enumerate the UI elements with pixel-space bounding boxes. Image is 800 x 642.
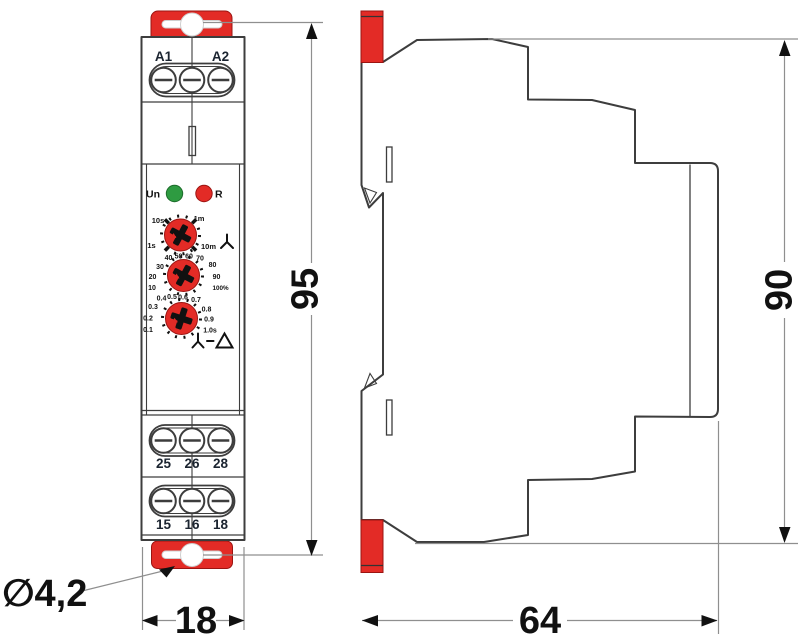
terminal-label-a1: A1 — [155, 49, 173, 64]
dim-text-front-width: 18 — [175, 600, 217, 637]
side-view — [361, 11, 718, 573]
led-green — [166, 185, 182, 201]
dial-scale-label: 0.5 — [167, 294, 177, 301]
dial-scale-label: 60 — [185, 254, 193, 261]
dial-scale-label: 20 — [149, 274, 157, 281]
terminal-block-top — [150, 64, 235, 97]
front-view: A1 A2 Un R 10s — [142, 11, 245, 569]
dial-scale-label: 0.8 — [202, 307, 212, 314]
screw-terminal — [208, 68, 233, 93]
screw-terminal — [208, 428, 233, 453]
side-profile — [362, 39, 719, 542]
screw-terminal — [180, 489, 205, 514]
dim-text-side-height: 90 — [758, 269, 800, 311]
terminal-block-25-26-28: 25 26 28 — [150, 425, 235, 471]
terminal-label: 15 — [156, 517, 172, 532]
dial-scale-label: 0.7 — [191, 297, 201, 304]
dial-scale-label: 0.2 — [143, 316, 153, 323]
dial-scale-label: 0.4 — [157, 296, 167, 303]
arrowhead — [142, 615, 158, 627]
dim-text-front-height: 95 — [284, 268, 326, 310]
mounting-hole-top — [181, 13, 204, 36]
technical-drawing-page: A1 A2 Un R 10s — [0, 0, 800, 637]
screw-terminal — [151, 68, 176, 93]
dial-scale-label: 90 — [213, 274, 221, 281]
dial-scale-label: 70 — [196, 256, 204, 263]
led-red — [196, 185, 212, 201]
dial-scale-label: 1m — [194, 214, 205, 223]
dial-scale-label: 0.1 — [143, 327, 153, 334]
terminal-block-15-16-18: 15 16 18 — [150, 486, 235, 533]
arrowhead — [229, 615, 245, 627]
dim-text-mounting-hole: ∅4,2 — [2, 573, 87, 615]
dial-scale-label: 1s — [147, 241, 155, 250]
screw-terminal — [180, 428, 205, 453]
terminal-label: 26 — [184, 456, 200, 471]
dial-scale-label: 10s — [152, 216, 165, 225]
relay-dimensional-drawing: A1 A2 Un R 10s — [0, 0, 800, 637]
arrowhead — [779, 527, 791, 543]
terminal-label: 25 — [156, 456, 172, 471]
dial-scale-label: 1.0s — [203, 328, 217, 335]
dial-scale-label: 80 — [209, 262, 217, 269]
arrowhead — [702, 615, 718, 627]
top-mounting-tab-side — [361, 11, 383, 63]
terminal-label-a2: A2 — [212, 49, 229, 64]
dial-scale-label: 0.6 — [178, 295, 188, 302]
led-label-un: Un — [146, 189, 160, 201]
dial-scale-label: 10m — [201, 242, 216, 251]
terminal-label: 16 — [184, 517, 200, 532]
screw-terminal — [151, 489, 176, 514]
arrowhead — [779, 40, 791, 56]
arrowhead — [306, 23, 318, 39]
terminal-label: 28 — [213, 456, 229, 471]
dial-scale-label: 30 — [156, 264, 164, 271]
dial-scale-label: 0.9 — [204, 317, 214, 324]
dial-scale-label: 40 — [165, 255, 173, 262]
arrowhead — [362, 615, 378, 627]
screw-terminal — [151, 428, 176, 453]
dial-scale-label: 100% — [212, 285, 229, 292]
led-label-r: R — [215, 189, 223, 201]
dial-scale-label: 0.3 — [148, 304, 158, 311]
screw-terminal — [208, 489, 233, 514]
dial-scale-label: 10 — [148, 285, 156, 292]
dim-text-side-depth: 64 — [519, 600, 561, 637]
arrowhead — [306, 540, 318, 556]
hole-diameter-callout: ∅4,2 — [2, 566, 175, 615]
dial-scale-label: 50 — [175, 254, 183, 261]
bottom-mounting-tab-side — [361, 520, 383, 573]
screw-terminal — [180, 68, 205, 93]
mounting-hole-bottom — [181, 544, 204, 567]
terminal-label: 18 — [213, 517, 229, 532]
